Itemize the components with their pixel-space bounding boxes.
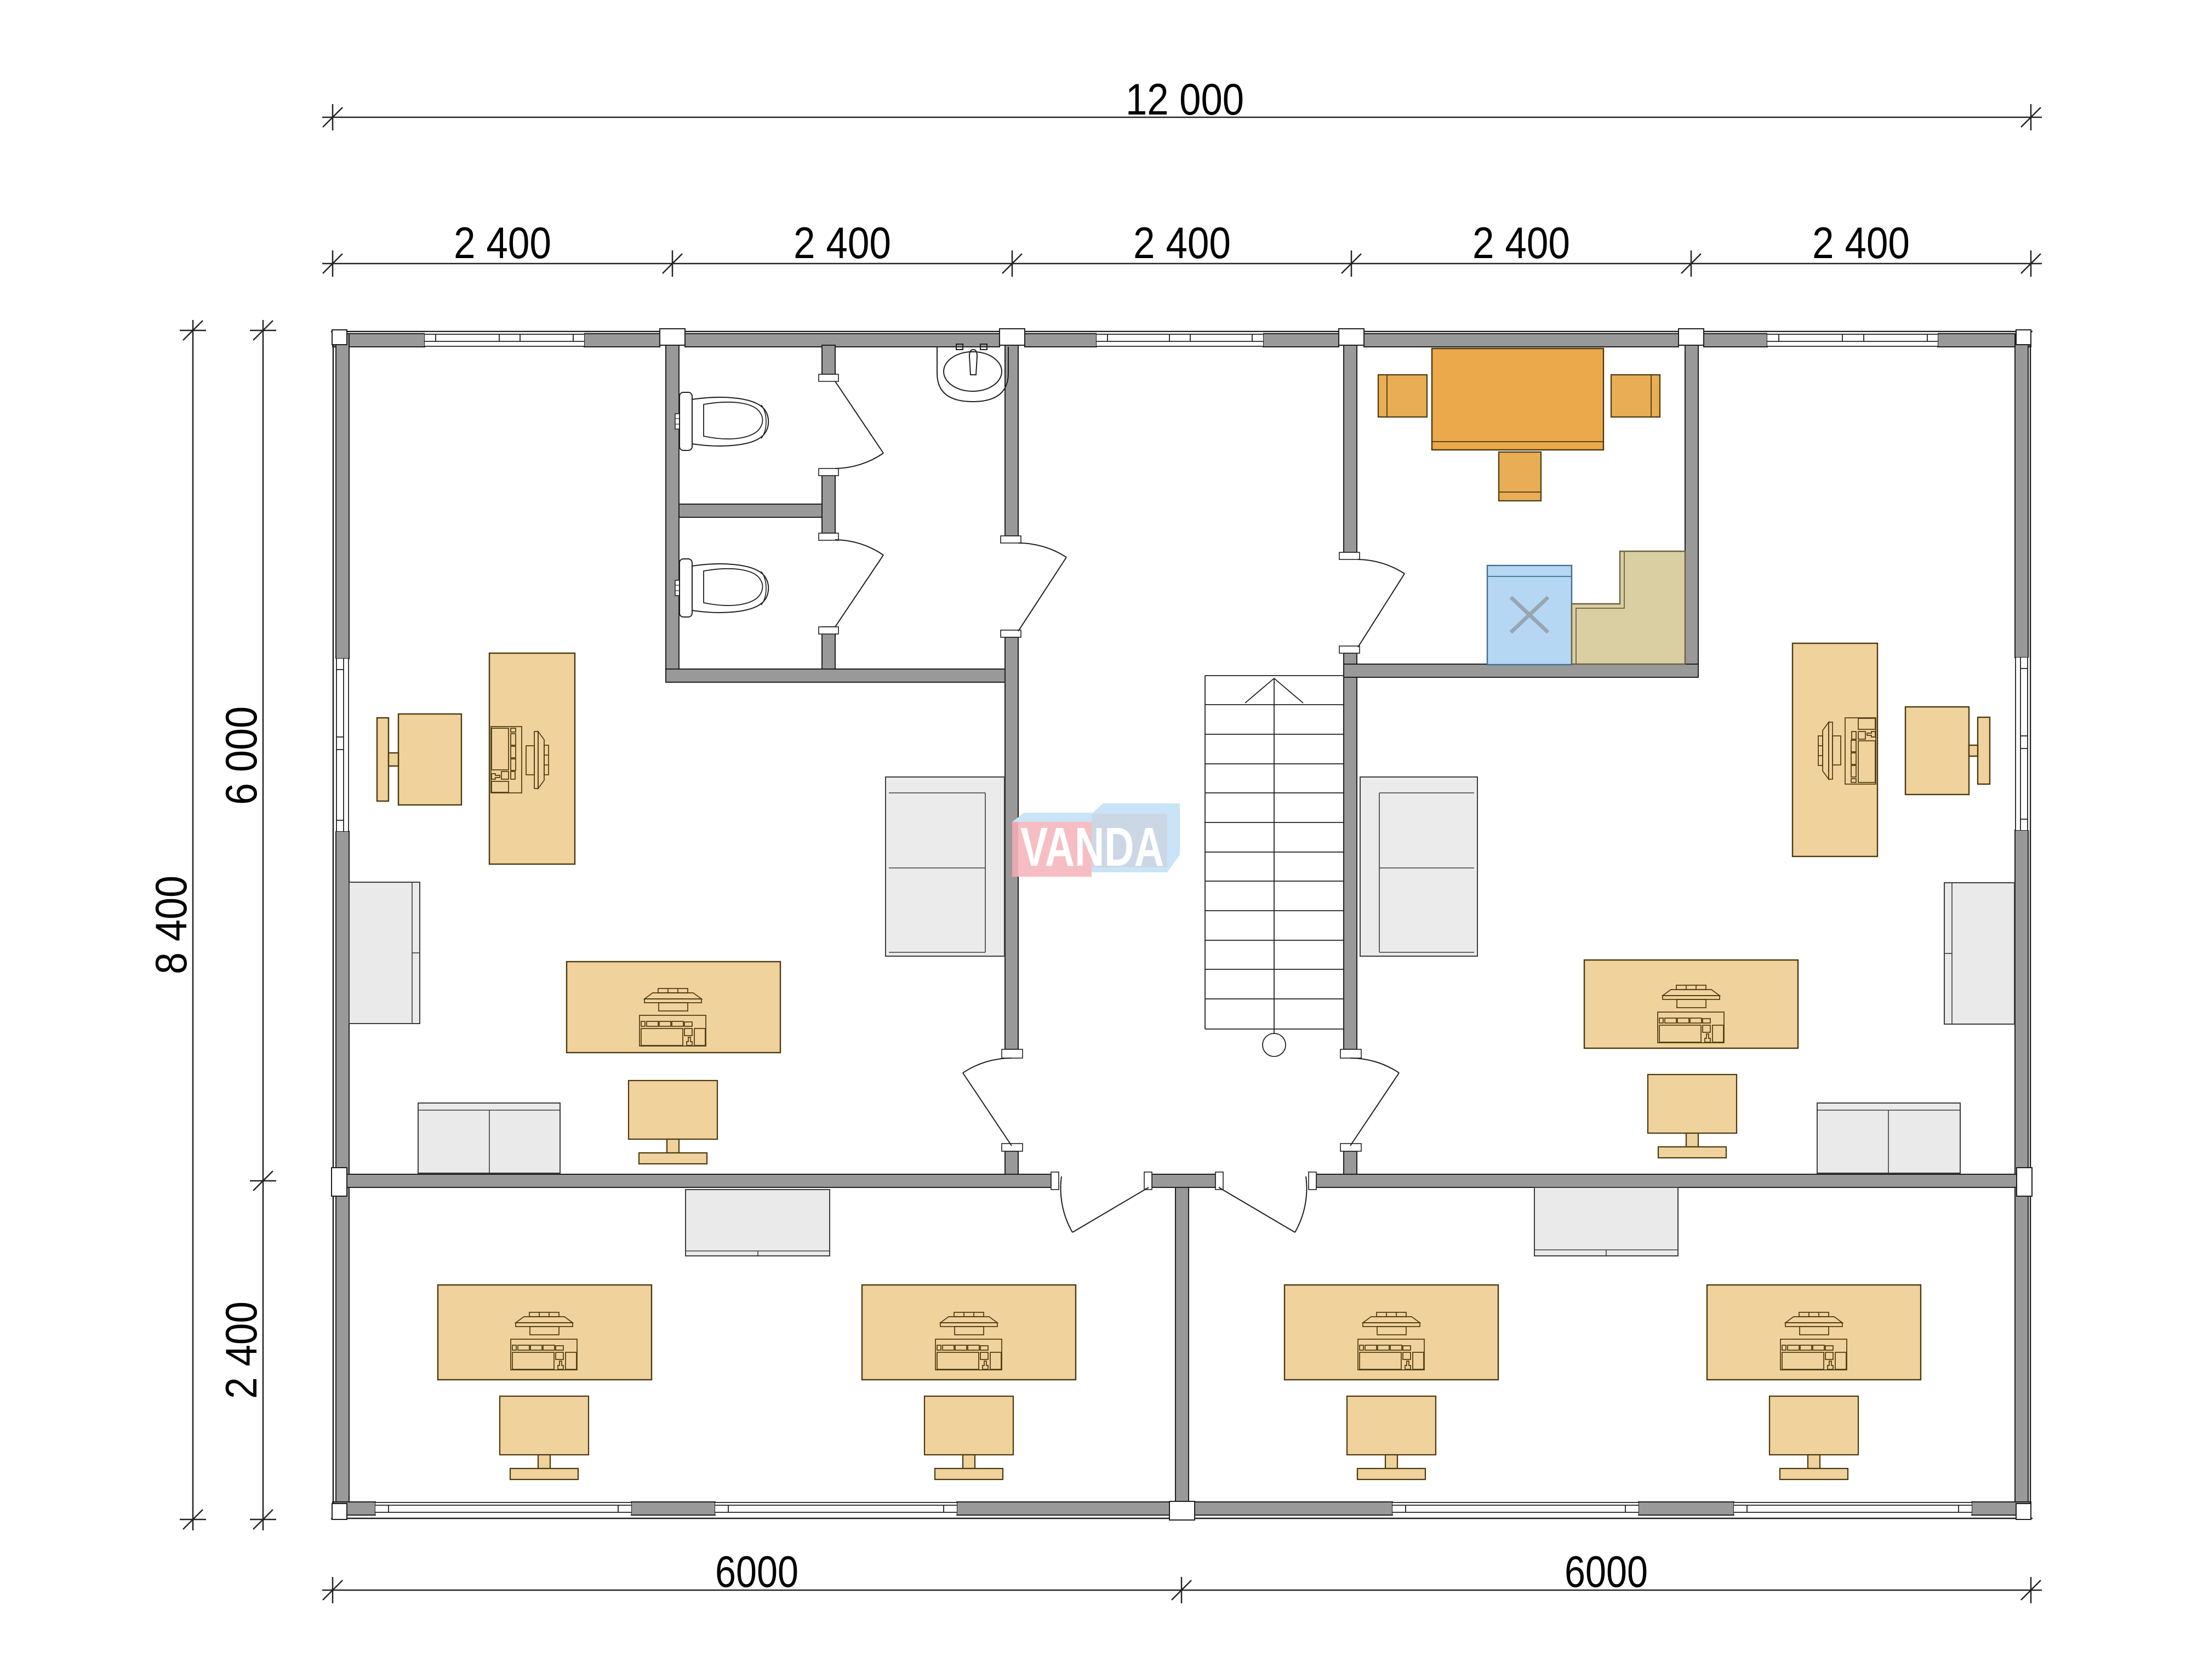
svg-text:2 400: 2 400 bbox=[454, 219, 551, 268]
svg-text:2 400: 2 400 bbox=[1133, 219, 1231, 268]
svg-text:2 400: 2 400 bbox=[1812, 219, 1910, 268]
svg-text:12 000: 12 000 bbox=[1126, 75, 1244, 124]
svg-text:6000: 6000 bbox=[1565, 1547, 1648, 1597]
svg-text:6 000: 6 000 bbox=[217, 706, 266, 805]
svg-text:2 400: 2 400 bbox=[1472, 219, 1570, 268]
svg-text:VANDA: VANDA bbox=[1020, 816, 1164, 878]
svg-text:6000: 6000 bbox=[715, 1547, 798, 1597]
svg-text:2 400: 2 400 bbox=[217, 1301, 266, 1399]
svg-text:2 400: 2 400 bbox=[794, 219, 891, 268]
svg-text:8 400: 8 400 bbox=[147, 876, 196, 974]
